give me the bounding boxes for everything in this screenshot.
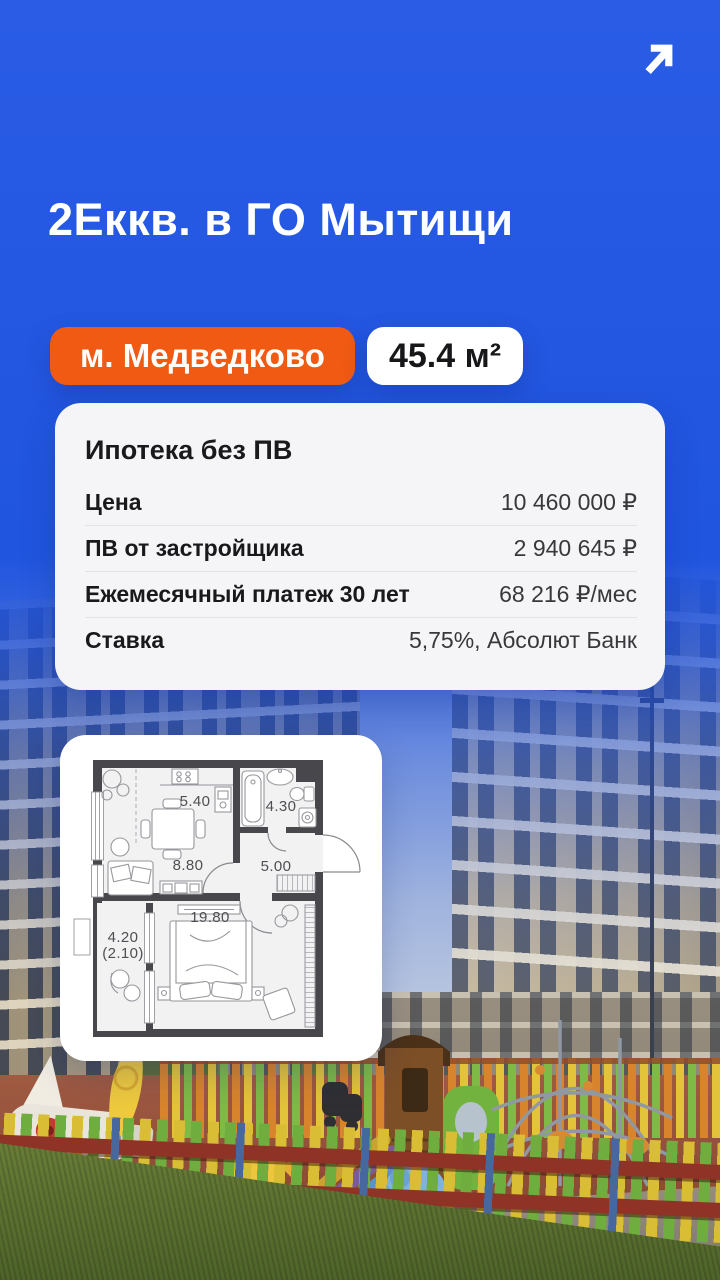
row-label: Ставка xyxy=(85,627,164,654)
hall-area-label: 5.00 xyxy=(261,858,292,875)
badges-row: м. Медведково 45.4 м² xyxy=(50,327,523,385)
mortgage-card-title: Ипотека без ПВ xyxy=(85,435,637,466)
row-label: Ежемесячный платеж 30 лет xyxy=(85,581,410,608)
metro-badge: м. Медведково xyxy=(50,327,355,385)
row-label: Цена xyxy=(85,489,142,516)
row-value: 5,75%, Абсолют Банк xyxy=(409,627,637,654)
row-value: 2 940 645 ₽ xyxy=(514,535,637,562)
balcony-area-label: 4.20 xyxy=(108,929,139,946)
mortgage-row-downpayment: ПВ от застройщика 2 940 645 ₽ xyxy=(85,526,637,571)
real-estate-ad-card: 2Еккв. в ГО Мытищи м. Медведково 45.4 м²… xyxy=(0,0,720,1280)
bathtub xyxy=(242,771,264,826)
mortgage-row-monthly: Ежемесячный платеж 30 лет 68 216 ₽/мес xyxy=(85,572,637,617)
floorplan-drawing: 5.40 4.30 8.80 5.00 19.80 4.20 (2.10) xyxy=(60,735,382,1061)
living-area-label: 8.80 xyxy=(173,857,204,874)
row-value: 68 216 ₽/мес xyxy=(499,581,637,608)
stove xyxy=(172,769,198,784)
tv-bench xyxy=(160,881,202,894)
arrow-up-right-icon[interactable] xyxy=(640,40,676,78)
washing-machine xyxy=(299,808,316,827)
balcony-reduced-area-label: (2.10) xyxy=(102,945,144,962)
bed xyxy=(170,921,252,1001)
bathroom-area-label: 4.30 xyxy=(266,798,297,815)
row-label: ПВ от застройщика xyxy=(85,535,304,562)
area-badge: 45.4 м² xyxy=(367,327,523,385)
floorplan-card: 5.40 4.30 8.80 5.00 19.80 4.20 (2.10) xyxy=(60,735,382,1061)
mortgage-row-price: Цена 10 460 000 ₽ xyxy=(85,480,637,525)
page-title: 2Еккв. в ГО Мытищи xyxy=(48,194,514,246)
sink xyxy=(267,769,293,785)
kitchen-area-label: 5.40 xyxy=(180,793,211,810)
mortgage-row-rate: Ставка 5,75%, Абсолют Банк xyxy=(85,618,637,663)
row-value: 10 460 000 ₽ xyxy=(501,489,637,516)
mortgage-card: Ипотека без ПВ Цена 10 460 000 ₽ ПВ от з… xyxy=(55,403,665,690)
bedroom-area-label: 19.80 xyxy=(190,909,230,926)
